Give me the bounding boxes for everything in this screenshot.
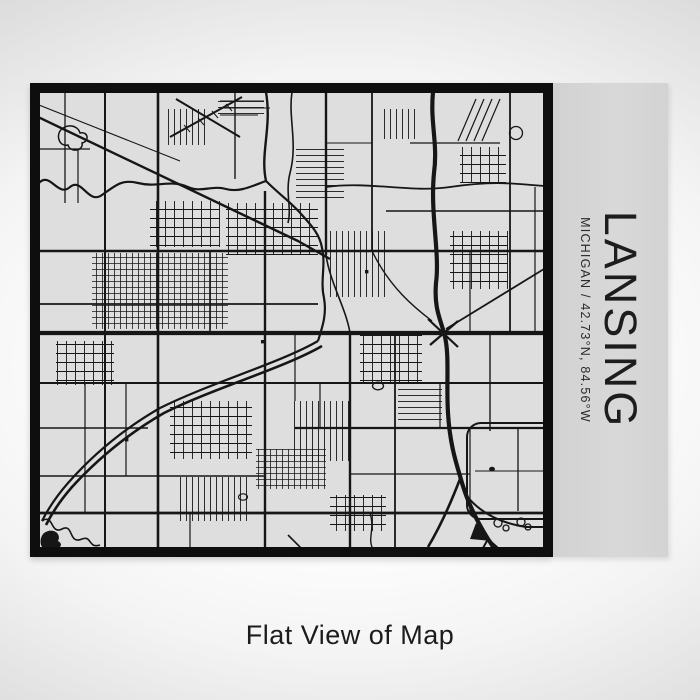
map-print <box>30 83 553 557</box>
city-coordinates: MICHIGAN / 42.73°N, 84.56°W <box>577 211 591 430</box>
caption-text: Flat View of Map <box>0 620 700 651</box>
map-graphic <box>30 83 553 557</box>
city-title: LANSING <box>596 211 643 430</box>
side-label: LANSING MICHIGAN / 42.73°N, 84.56°W <box>577 211 643 430</box>
side-panel: LANSING MICHIGAN / 42.73°N, 84.56°W <box>553 83 668 557</box>
product-mockup: LANSING MICHIGAN / 42.73°N, 84.56°W Flat… <box>0 0 700 700</box>
